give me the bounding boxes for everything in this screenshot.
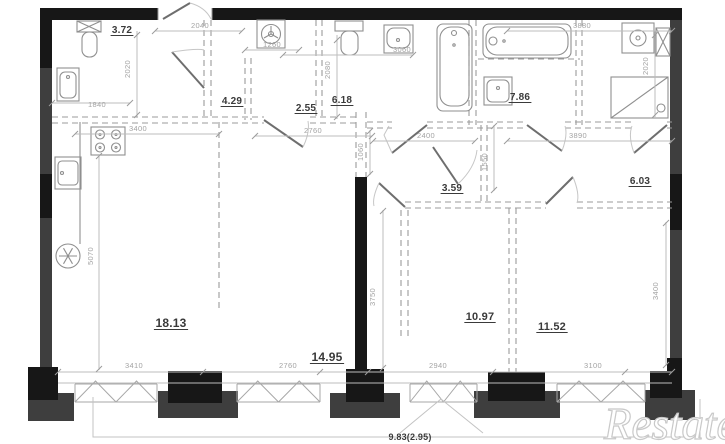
dimension-label: 5070 [86, 247, 95, 265]
dimension-label: 2940 [429, 361, 447, 370]
dimension-label: 3880 [573, 21, 591, 30]
dimension-label: 1060 [356, 143, 365, 161]
dimension-label: 2020 [123, 60, 132, 78]
small-sink-icon [484, 77, 512, 105]
closet-door [264, 120, 308, 147]
window-symbol [410, 381, 477, 402]
kitchen-sink-icon [55, 157, 81, 189]
dimension-label: 2760 [279, 361, 297, 370]
dimension-label: 2760 [304, 126, 322, 135]
dimension-label: 3750 [368, 288, 377, 306]
wc-sink-icon [57, 68, 79, 101]
room-area-label-hallway: 4.29 [222, 96, 243, 107]
bedroom1-door [374, 183, 405, 207]
hall-door [433, 147, 477, 184]
room-area-label-bathroom: 6.18 [332, 95, 353, 106]
window-symbol [237, 381, 320, 402]
room-area-label-kitchen-living: 18.13 [155, 316, 186, 330]
bathroom2-door [527, 125, 566, 151]
dimension-label: 3410 [125, 361, 143, 370]
fridge-icon [56, 244, 80, 268]
watermark-text: Restate [603, 399, 725, 444]
dimension-label: 1260 [263, 40, 281, 49]
floor-plan: 3.724.292.556.187.863.596.0318.1314.9510… [0, 0, 725, 444]
entrance-door [163, 3, 211, 19]
shower-room-door [630, 125, 667, 153]
dimension-label: 2040 [191, 21, 209, 30]
room-area-label-balcony: 9.83(2.95) [388, 432, 431, 442]
window-symbol [75, 381, 157, 402]
dimension-label: 3400 [651, 282, 660, 300]
washer-dryer-icon [622, 23, 670, 56]
dimension-label: 1550 [480, 153, 489, 171]
dimension-label: 2020 [641, 57, 650, 75]
room-area-label-wc: 3.72 [112, 25, 133, 36]
dimension-label: 2080 [323, 61, 332, 79]
room-area-label-closet: 2.55 [296, 103, 317, 114]
toilet-icon [77, 21, 101, 57]
bathtub-horizontal-icon [483, 24, 571, 58]
room-area-label-bedroom-1: 10.97 [466, 311, 495, 323]
bedroom2-door [546, 177, 578, 204]
room-area-label-bedroom-2: 11.52 [538, 321, 566, 333]
room-area-label-living-zone: 14.95 [311, 350, 342, 364]
dimension-label: 3890 [569, 131, 587, 140]
floor-plan-drawing: 3.724.292.556.187.863.596.0318.1314.9510… [0, 0, 725, 444]
dimension-label: 3400 [129, 124, 147, 133]
dimension-label: 1840 [88, 100, 106, 109]
room-area-label-wardrobe: 6.03 [630, 176, 651, 187]
stove-icon [91, 127, 125, 155]
room-area-label-hall: 3.59 [442, 183, 463, 194]
room-area-label-bathroom-2: 7.86 [510, 92, 531, 103]
bathtub-vertical-icon [437, 24, 472, 111]
wc-door [172, 49, 204, 88]
shower-icon [611, 77, 668, 118]
dimension-label: 3060 [393, 45, 411, 54]
dimension-label: 3100 [584, 361, 602, 370]
dimension-label: 2400 [417, 131, 435, 140]
